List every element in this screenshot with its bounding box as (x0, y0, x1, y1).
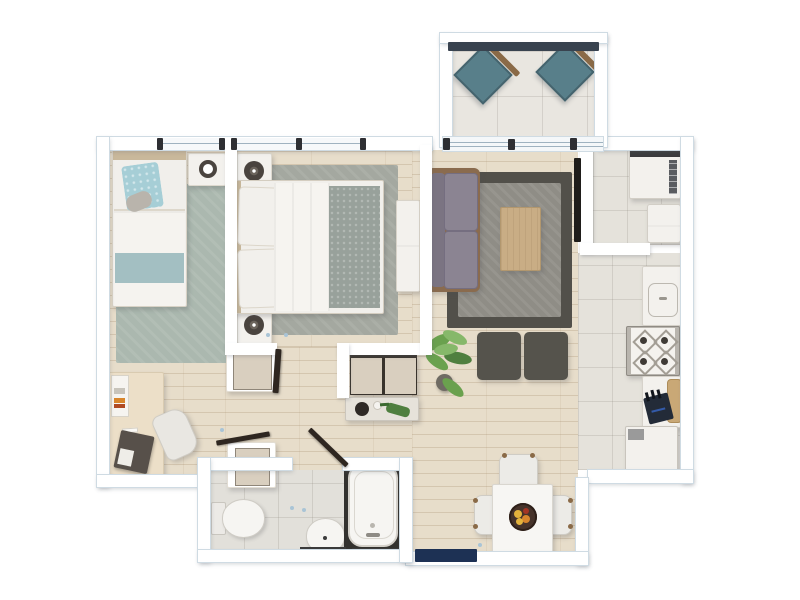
chair-wood-knob (502, 453, 507, 458)
window-cap (360, 138, 366, 150)
window-cap (157, 138, 163, 150)
bathroom-wall-bottom (198, 550, 412, 562)
gray-blanket (329, 186, 380, 308)
wall-bedroom1-bedroom2 (225, 145, 237, 347)
wall-bottom-left (97, 475, 205, 487)
washing-machine (629, 150, 681, 199)
wall-bedroom2-living (420, 145, 432, 355)
wall-laundry-bottom (580, 243, 650, 255)
wall-bedroom2-bottom-right (337, 343, 420, 355)
book-spine (114, 398, 125, 403)
sliding-door-cap (508, 139, 515, 150)
console-table (345, 397, 419, 421)
fruit (516, 518, 523, 525)
window-cap (231, 138, 237, 150)
laundry-basket (647, 204, 681, 243)
books (111, 375, 129, 417)
tub-inner (354, 471, 394, 539)
book-spine (114, 404, 125, 408)
door-hinge-dot (266, 333, 270, 337)
basin-drain (323, 536, 327, 540)
chair-wood-knob (473, 498, 478, 503)
front-door-mat (415, 549, 477, 562)
ottoman (477, 332, 521, 380)
wall-hall-stub (337, 343, 349, 398)
wall-bottom-kitchen (588, 470, 693, 483)
washer-lid-band (630, 151, 680, 157)
nightstand (188, 153, 226, 186)
cabinet-door (351, 358, 382, 394)
kitchen-sink-counter (642, 266, 683, 326)
knife-handle (650, 390, 655, 399)
book-spine (114, 388, 125, 394)
wall-top-right (597, 137, 693, 150)
shoe-cabinet (350, 355, 417, 395)
fruit (522, 515, 530, 523)
window-cap (296, 138, 302, 150)
knife-glint (651, 407, 665, 412)
burner-cap (640, 358, 647, 365)
door-hinge-dot (302, 508, 306, 512)
door-hinge-dot (220, 428, 224, 432)
balcony-railing (448, 42, 599, 51)
window-track (158, 143, 225, 144)
sink-basin (648, 283, 678, 317)
cabinet-door (385, 358, 416, 394)
chair-wood-knob (568, 498, 573, 503)
sliding-door-track (443, 146, 603, 147)
alarm-clock (199, 160, 217, 178)
wall-tv (574, 158, 581, 242)
closet-box (233, 354, 272, 390)
gas-stove (626, 326, 680, 376)
sliding-door-track (443, 142, 603, 143)
washer-control-panel (669, 160, 677, 194)
speaker (244, 315, 264, 335)
sofa (427, 168, 480, 292)
fruit (523, 508, 529, 514)
prep-counter (642, 376, 683, 428)
wall-right-kitchen (681, 137, 693, 483)
balcony-sliding-door (443, 137, 603, 151)
burner-cap (661, 337, 668, 344)
bathroom-wall-left (198, 458, 210, 562)
knife-handle (645, 392, 650, 401)
knife-handle (656, 389, 661, 398)
door-hinge-dot (290, 506, 294, 510)
headboard (113, 151, 186, 160)
coffee-table (500, 207, 541, 271)
sofa-seat-cushion (444, 231, 478, 289)
blanket-band (115, 253, 184, 283)
burner-cap (661, 358, 668, 365)
burner-cap (640, 337, 647, 344)
dining-table (492, 484, 553, 555)
sofa-back-cushion (431, 173, 445, 287)
door-hinge-dot (284, 333, 288, 337)
bathtub (344, 459, 403, 552)
tub-faucet (366, 533, 380, 537)
notebook-page (117, 448, 134, 467)
bathroom-wall-top-left (198, 458, 292, 470)
fruit (514, 510, 522, 518)
sliding-door-cap (570, 138, 577, 150)
toilet-bowl (222, 499, 265, 538)
floor-plan (0, 0, 800, 600)
sliding-door-cap (443, 138, 450, 150)
tub-drain (370, 523, 375, 528)
notebook (113, 430, 154, 474)
bedroom-1-window (158, 138, 225, 150)
bathroom-wall-right (400, 458, 412, 562)
decor-tray (355, 402, 369, 416)
dresser (396, 200, 420, 292)
fridge-hinge-plate (628, 429, 644, 440)
door-hinge-dot (478, 543, 482, 547)
toilet (211, 499, 263, 537)
watering-can (385, 402, 411, 418)
can-spout (380, 403, 389, 407)
ottoman (524, 332, 568, 380)
speaker (244, 161, 264, 181)
wall-bedroom2-bottom-left (225, 343, 277, 355)
wall-living-laundry (580, 145, 593, 252)
wall-left (97, 137, 109, 487)
window-cap (219, 138, 225, 150)
sink-faucet (659, 297, 667, 300)
single-bed (112, 150, 187, 307)
double-bed (233, 180, 384, 314)
duvet (274, 183, 330, 311)
sofa-seat-cushion (444, 173, 478, 231)
fruit-bowl (509, 503, 537, 531)
